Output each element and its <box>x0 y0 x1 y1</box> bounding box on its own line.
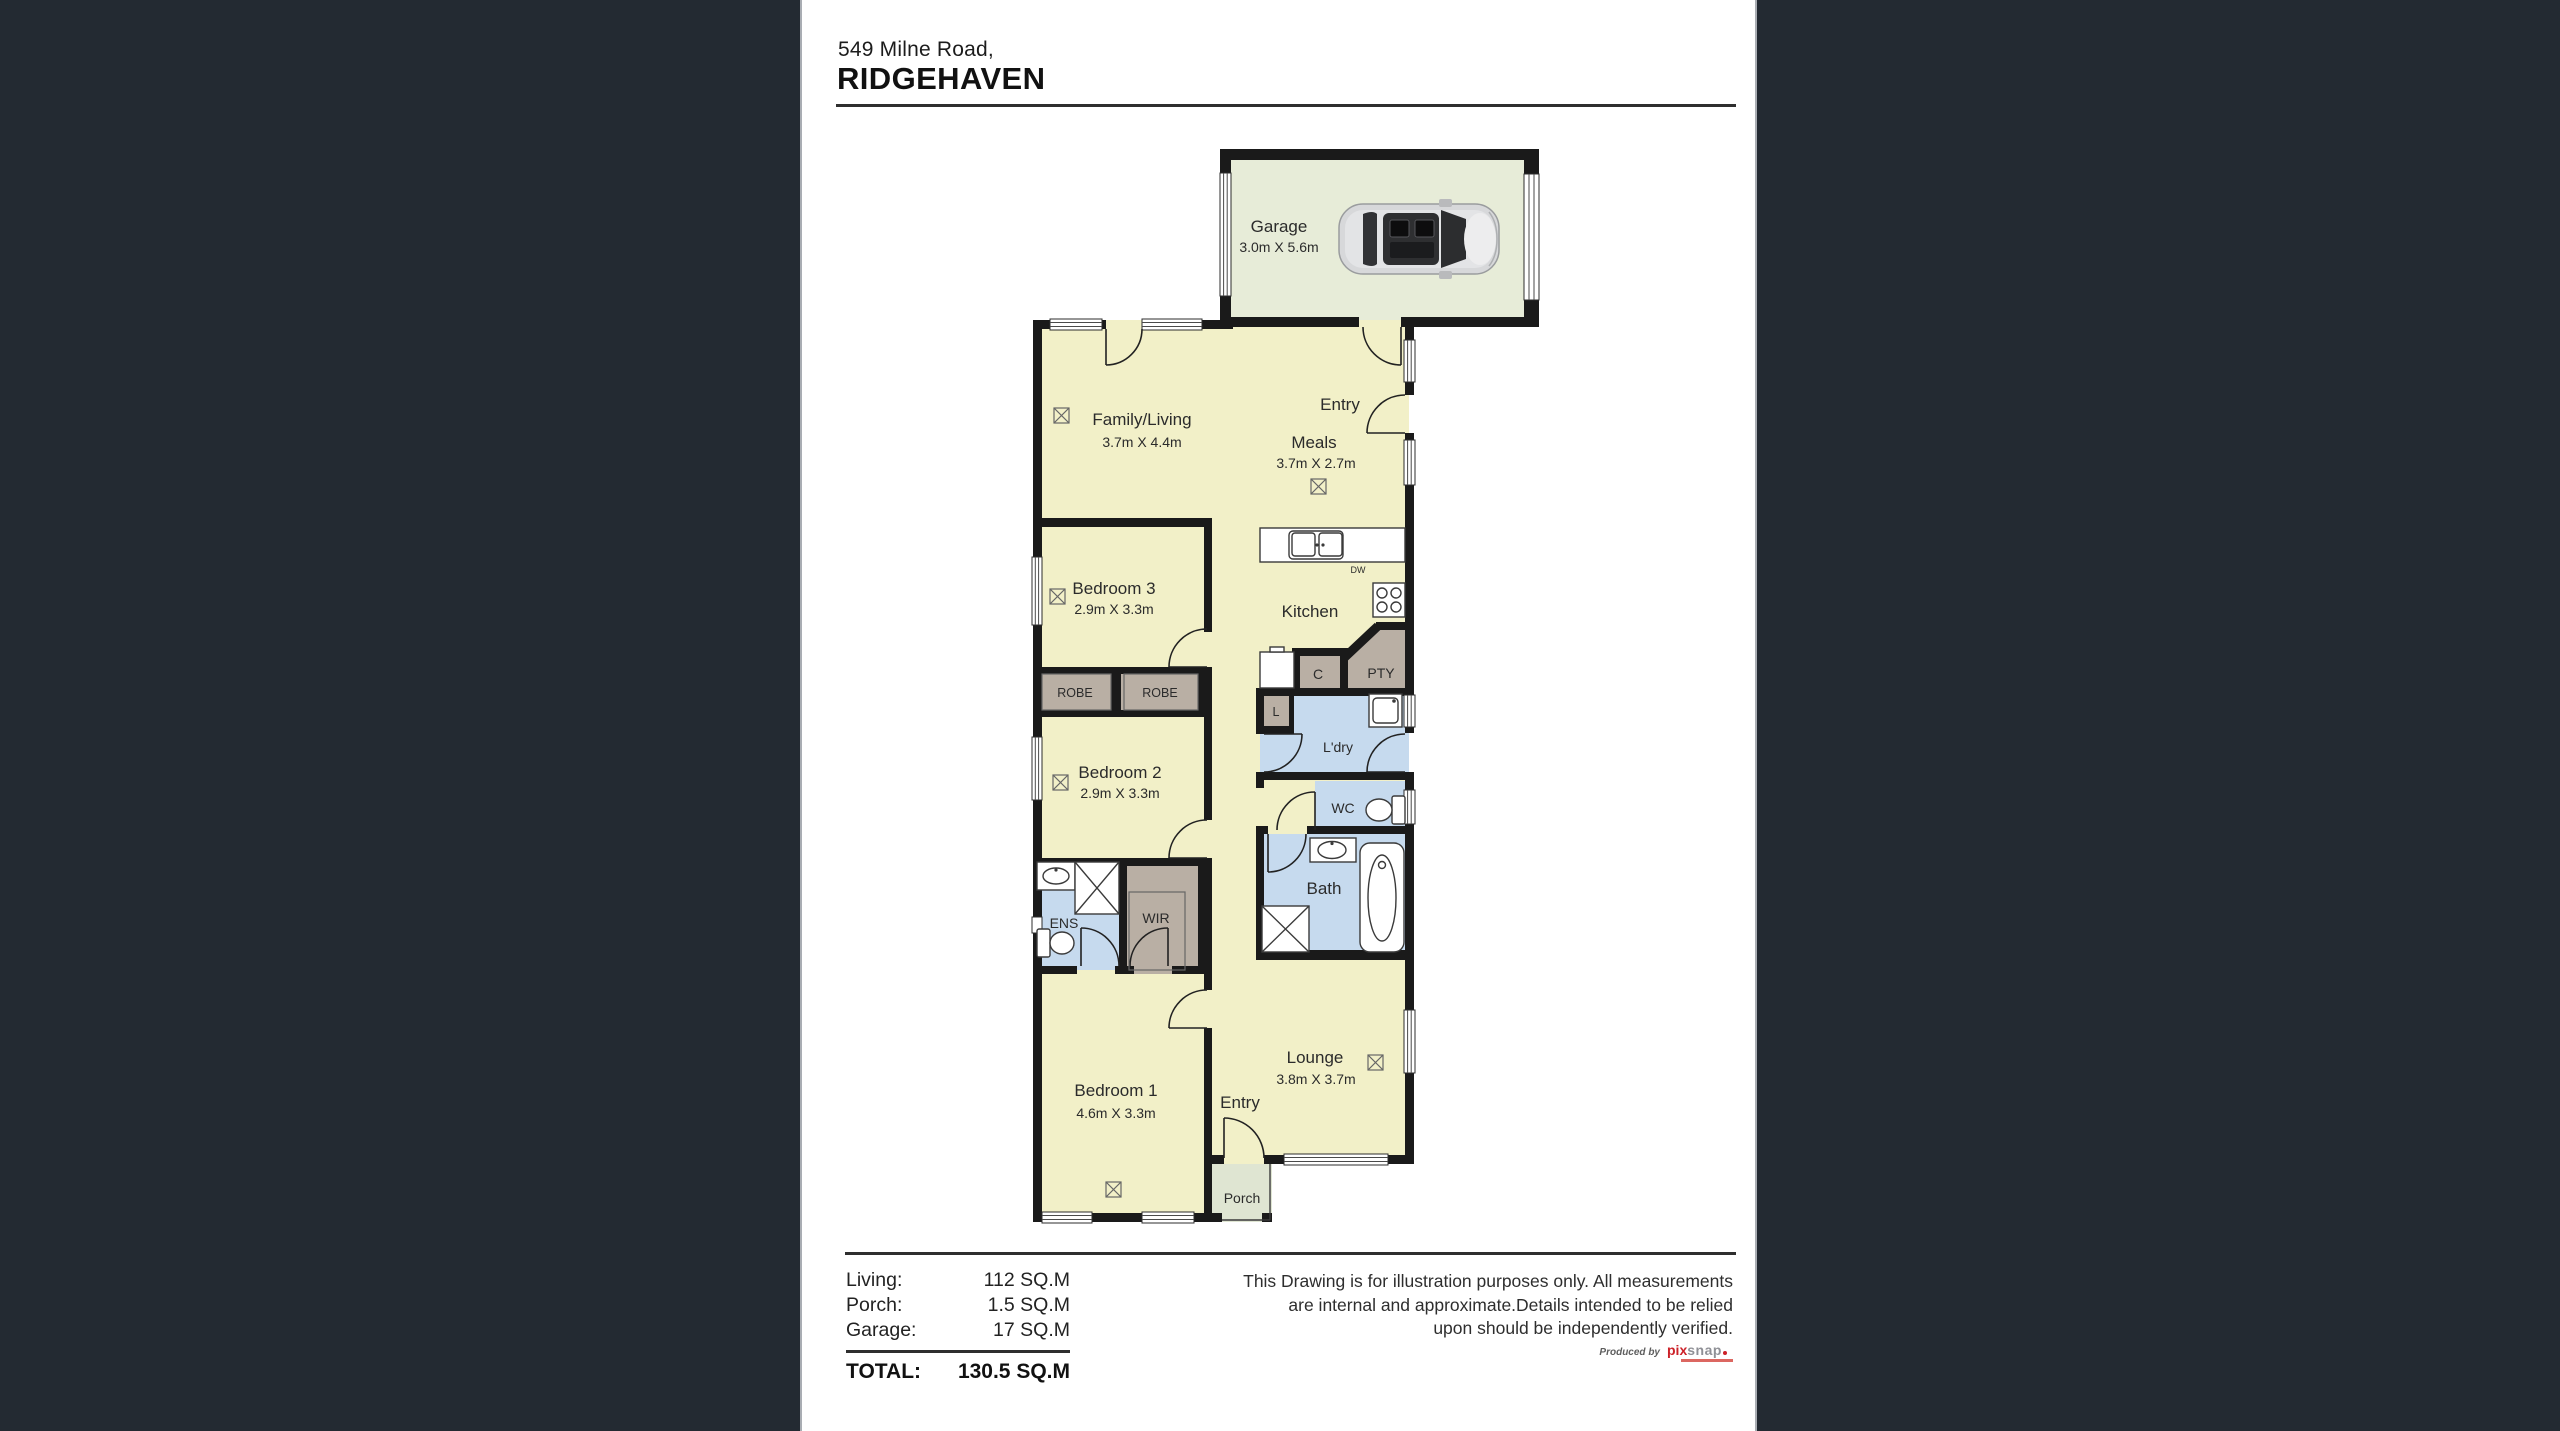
label-dw: DW <box>1351 565 1366 575</box>
logo-text-snap: snap <box>1687 1342 1722 1358</box>
area-value: 112 SQ.M <box>984 1268 1070 1293</box>
window-bed3 <box>1032 557 1042 625</box>
label-lounge: Lounge <box>1287 1048 1344 1067</box>
window-meals-1 <box>1404 340 1415 382</box>
window-bed2 <box>1032 737 1042 800</box>
label-wir: WIR <box>1142 910 1169 926</box>
label-bed2-dims: 2.9m X 3.3m <box>1080 785 1159 801</box>
label-lounge-dims: 3.8m X 3.7m <box>1276 1071 1355 1087</box>
bath-shower <box>1262 906 1309 952</box>
label-meals-dims: 3.7m X 2.7m <box>1276 455 1355 471</box>
disclaimer-line: are internal and approximate.Details int… <box>1173 1294 1733 1318</box>
total-value: 130.5 SQ.M <box>958 1359 1070 1385</box>
label-entry-top: Entry <box>1320 395 1360 414</box>
label-laundry: L'dry <box>1323 739 1353 755</box>
ensuite-shower <box>1075 862 1119 914</box>
bathtub <box>1360 843 1404 952</box>
window-lounge-bottom <box>1284 1154 1388 1165</box>
disclaimer-line: This Drawing is for illustration purpose… <box>1173 1270 1733 1294</box>
garage-door <box>1524 174 1539 300</box>
window-top-2 <box>1142 319 1202 330</box>
canvas-background: 549 Milne Road, RIDGEHAVEN <box>0 0 2560 1431</box>
label-wc: WC <box>1331 800 1354 816</box>
kitchen-bench <box>1260 528 1405 562</box>
logo-text-pix: pix <box>1667 1342 1687 1358</box>
car-illustration <box>1339 199 1499 279</box>
label-bed2: Bedroom 2 <box>1078 763 1161 782</box>
label-robe1: ROBE <box>1057 686 1092 700</box>
bath-vanity <box>1310 838 1356 862</box>
table-row: Living: 112 SQ.M <box>846 1268 1070 1293</box>
ensuite-vanity <box>1037 862 1075 890</box>
ensuite-toilet <box>1037 929 1074 957</box>
window-lounge-right <box>1404 1010 1415 1073</box>
produced-by-credit: Produced by pixsnap <box>1599 1344 1733 1362</box>
laundry-tub <box>1369 694 1402 727</box>
logo-dot-icon <box>1723 1351 1727 1355</box>
wc-toilet <box>1366 796 1405 824</box>
window-top-1 <box>1050 319 1102 330</box>
label-kitchen: Kitchen <box>1282 602 1339 621</box>
label-bath: Bath <box>1307 879 1342 898</box>
floorplan-sheet: 549 Milne Road, RIDGEHAVEN <box>800 0 1757 1431</box>
label-family-dims: 3.7m X 4.4m <box>1102 434 1181 450</box>
table-row: Garage: 17 SQ.M <box>846 1318 1070 1343</box>
window-laundry <box>1404 695 1415 727</box>
label-ens: ENS <box>1050 915 1079 931</box>
footer-divider <box>845 1252 1736 1255</box>
label-bed3: Bedroom 3 <box>1072 579 1155 598</box>
disclaimer-line: upon should be independently verified. <box>1173 1317 1733 1341</box>
fridge-space <box>1260 647 1294 688</box>
window-meals-2 <box>1404 440 1415 485</box>
label-porch: Porch <box>1224 1190 1261 1206</box>
pixsnap-logo: pixsnap <box>1667 1344 1733 1362</box>
floorplan-drawing: Garage 3.0m X 5.6m Family/Living 3.7m X … <box>802 0 1755 1431</box>
label-bed3-dims: 2.9m X 3.3m <box>1074 601 1153 617</box>
label-garage-dims: 3.0m X 5.6m <box>1239 239 1318 255</box>
total-divider <box>846 1350 1070 1353</box>
area-label: Porch: <box>846 1293 902 1318</box>
label-entry-bottom: Entry <box>1220 1093 1260 1112</box>
table-row: Porch: 1.5 SQ.M <box>846 1293 1070 1318</box>
label-meals: Meals <box>1291 433 1336 452</box>
window-bed1-right <box>1142 1212 1194 1223</box>
label-linen: L <box>1273 705 1280 719</box>
label-family: Family/Living <box>1092 410 1191 429</box>
area-summary-table: Living: 112 SQ.M Porch: 1.5 SQ.M Garage:… <box>846 1268 1070 1385</box>
label-garage: Garage <box>1251 217 1308 236</box>
produced-by-label: Produced by <box>1599 1347 1660 1358</box>
area-label: Garage: <box>846 1318 916 1343</box>
window-garage <box>1220 173 1231 296</box>
logo-tagline-mark <box>1681 1359 1733 1362</box>
label-pantry: PTY <box>1367 665 1395 681</box>
total-label: TOTAL: <box>846 1359 921 1385</box>
window-bed1-left <box>1042 1212 1092 1223</box>
label-robe2: ROBE <box>1142 686 1177 700</box>
label-bed1: Bedroom 1 <box>1074 1081 1157 1100</box>
area-label: Living: <box>846 1268 902 1293</box>
area-value: 17 SQ.M <box>993 1318 1070 1343</box>
label-cupboard: C <box>1313 666 1323 682</box>
disclaimer-text: This Drawing is for illustration purpose… <box>1173 1270 1733 1341</box>
cooktop <box>1373 583 1405 617</box>
label-bed1-dims: 4.6m X 3.3m <box>1076 1105 1155 1121</box>
area-value: 1.5 SQ.M <box>988 1293 1070 1318</box>
total-row: TOTAL: 130.5 SQ.M <box>846 1359 1070 1385</box>
